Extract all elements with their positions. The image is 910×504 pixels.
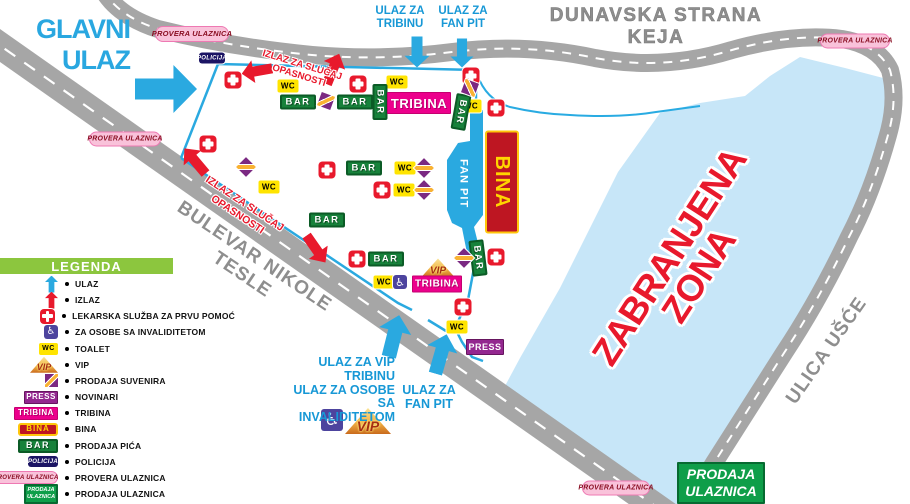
ticket-check-badge: PROVERA ULAZNICA: [582, 481, 650, 496]
legend-item-label: BINA: [75, 424, 97, 434]
legend-icon-cell: [0, 292, 58, 309]
ticket-check-badge: PROVERA ULAZNICA: [820, 34, 890, 49]
entrance-label-fanpit-bottom: ULAZ ZAFAN PIT: [393, 383, 465, 412]
legend-title: LEGENDA: [0, 258, 173, 274]
legend-bullet: [65, 411, 69, 415]
legend-item-label: TOALET: [75, 344, 110, 354]
legend-item-label: NOVINARI: [75, 392, 118, 402]
ticket-check-badge: PROVERA ULAZNICA: [155, 26, 229, 42]
exit-arrow-icon: [45, 292, 58, 309]
main-entrance-label: GLAVNIULAZ: [18, 14, 130, 76]
legend-bullet: [65, 363, 69, 367]
toilet-badge: WC: [259, 181, 280, 194]
entrance-arrow-icon: [373, 311, 415, 361]
entrance-arrow-icon: [451, 39, 474, 68]
wheelchair-icon: ♿: [44, 325, 58, 339]
toilet-badge: WC: [447, 321, 468, 334]
legend-bullet: [65, 379, 69, 383]
ticket-check-badge: PROVERA ULAZNICA: [89, 132, 161, 147]
legend-icon-cell: PROVERA ULAZNICA: [0, 471, 58, 484]
legend-item: POLICIJAPOLICIJA: [0, 454, 235, 470]
legend-icon-cell: WC: [0, 343, 58, 355]
legend-item-label: PRODAJA SUVENIRA: [75, 376, 166, 386]
legend-item-label: PROVERA ULAZNICA: [75, 473, 166, 483]
legend-icon-cell: BAR: [0, 439, 58, 453]
entrance-label-tribina: ULAZ ZATRIBINU: [365, 5, 435, 31]
toilet-badge: WC: [374, 276, 395, 289]
legend-icon-cell: VIP: [0, 357, 58, 373]
toilet-badge: WC: [387, 76, 408, 89]
police-badge: POLICIJA: [28, 456, 58, 467]
legend-item: PRODAJA SUVENIRA: [0, 373, 235, 389]
souvenir-shop-icon: [317, 92, 335, 110]
toilet-badge: WC: [39, 343, 58, 355]
entrance-label-fanpit-top: ULAZ ZAFAN PIT: [428, 5, 498, 31]
legend-item-label: VIP: [75, 360, 89, 370]
first-aid-icon: [455, 299, 472, 316]
toilet-badge: WC: [394, 184, 415, 197]
legend-bullet: [65, 460, 69, 464]
first-aid-icon: [349, 251, 366, 268]
bar-badge: BAR: [373, 84, 388, 120]
road-label-dunavska: DUNAVSKA STRANA KEJA: [520, 5, 792, 49]
legend-bullet: [65, 298, 69, 302]
entrance-arrow-icon: [135, 65, 197, 113]
legend-item: VIPVIP: [0, 357, 235, 373]
legend-item-label: IZLAZ: [75, 295, 100, 305]
legend-icon-cell: BINA: [0, 423, 58, 436]
legend-panel: LEGENDA ULAZIZLAZLEKARSKA SLUŽBA ZA PRVU…: [0, 258, 235, 504]
legend-bullet: [65, 347, 69, 351]
legend-item: WCTOALET: [0, 341, 235, 357]
legend-bullet: [65, 395, 69, 399]
first-aid-icon: [374, 182, 391, 199]
bar-badge: BAR: [368, 252, 404, 267]
legend-icon-cell: PRESS: [0, 391, 58, 404]
first-aid-icon: [488, 249, 505, 266]
legend-item-label: TRIBINA: [75, 408, 111, 418]
legend-item: LEKARSKA SLUŽBA ZA PRVU POMOĆ: [0, 308, 235, 324]
bina-stage-badge: BINA: [18, 423, 58, 436]
souvenir-shop-icon: [414, 180, 434, 200]
legend-item: PRODAJA ULAZNICAPRODAJA ULAZNICA: [0, 486, 235, 502]
police-badge: POLICIJA: [199, 53, 225, 64]
legend-item: TRIBINATRIBINA: [0, 405, 235, 421]
legend-bullet: [65, 492, 69, 496]
tribina-badge: TRIBINA: [387, 92, 451, 114]
entrance-arrow-icon: [405, 37, 430, 68]
first-aid-icon: [200, 136, 217, 153]
wheelchair-icon: ♿: [393, 275, 407, 289]
legend-item-label: LEKARSKA SLUŽBA ZA PRVU POMOĆ: [72, 311, 235, 321]
legend-icon-cell: [0, 276, 58, 293]
bar-badge: BAR: [337, 95, 373, 110]
legend-item: BINABINA: [0, 421, 235, 437]
souvenir-shop-icon: [236, 157, 256, 177]
first-aid-icon: [225, 72, 242, 89]
exit-arrow-icon: [297, 229, 335, 269]
legend-item: PRESSNOVINARI: [0, 389, 235, 405]
legend-item-label: ZA OSOBE SA INVALIDITETOM: [75, 327, 206, 337]
legend-bullet: [65, 282, 69, 286]
vip-icon: VIP: [30, 357, 58, 373]
legend-item: ♿ZA OSOBE SA INVALIDITETOM: [0, 324, 235, 340]
entrance-arrow-icon: [420, 330, 461, 378]
fan-pit-label: FAN PIT: [454, 142, 472, 226]
souvenir-shop-icon: [414, 158, 434, 178]
entrance-arrow-icon: [45, 276, 58, 293]
legend-icon-cell: ♿: [0, 325, 58, 339]
bar-badge: BAR: [280, 95, 316, 110]
ticket-check-badge: PROVERA ULAZNICA: [0, 471, 58, 484]
bar-badge: BAR: [309, 213, 345, 228]
first-aid-icon: [40, 309, 55, 324]
press-badge: PRESS: [466, 339, 504, 355]
legend-item-label: PRODAJA PIĆA: [75, 441, 141, 451]
first-aid-icon: [319, 162, 336, 179]
legend-item: ULAZ: [0, 276, 235, 292]
legend-item: IZLAZ: [0, 292, 235, 308]
bina-stage-badge: BINA: [485, 131, 519, 234]
legend-icon-cell: [0, 309, 55, 324]
tribina-badge: TRIBINA: [14, 407, 58, 420]
first-aid-icon: [488, 100, 505, 117]
ticket-sales-badge: PRODAJA ULAZNICA: [24, 484, 58, 504]
first-aid-icon: [350, 76, 367, 93]
souvenir-shop-icon: [45, 374, 58, 387]
bar-badge: BAR: [346, 161, 382, 176]
press-badge: PRESS: [24, 391, 58, 404]
legend-bullet: [65, 330, 69, 334]
ticket-sales-badge: PRODAJA ULAZNICA: [677, 462, 765, 504]
festival-map: WCWCWCWCWCWCWCWCBARBARBARBARBARBARBARBAR…: [0, 0, 910, 504]
legend-item-label: PRODAJA ULAZNICA: [75, 489, 165, 499]
legend-item: BARPRODAJA PIĆA: [0, 438, 235, 454]
legend-item-label: POLICIJA: [75, 457, 116, 467]
legend-bullet: [65, 444, 69, 448]
entrance-label-vip-disabled: ULAZ ZA VIP TRIBINUULAZ ZA OSOBE SAINVAL…: [273, 356, 395, 425]
tribina-badge: TRIBINA: [412, 276, 462, 293]
legend-bullet: [65, 427, 69, 431]
bar-badge: BAR: [450, 93, 471, 131]
legend-icon-cell: POLICIJA: [0, 456, 58, 467]
legend-icon-cell: TRIBINA: [0, 407, 58, 420]
toilet-badge: WC: [395, 162, 416, 175]
legend-bullet: [62, 314, 66, 318]
legend-icon-cell: PRODAJA ULAZNICA: [0, 484, 58, 504]
legend-item-label: ULAZ: [75, 279, 98, 289]
legend-bullet: [65, 476, 69, 480]
bar-badge: BAR: [18, 439, 58, 453]
legend-icon-cell: [0, 374, 58, 387]
